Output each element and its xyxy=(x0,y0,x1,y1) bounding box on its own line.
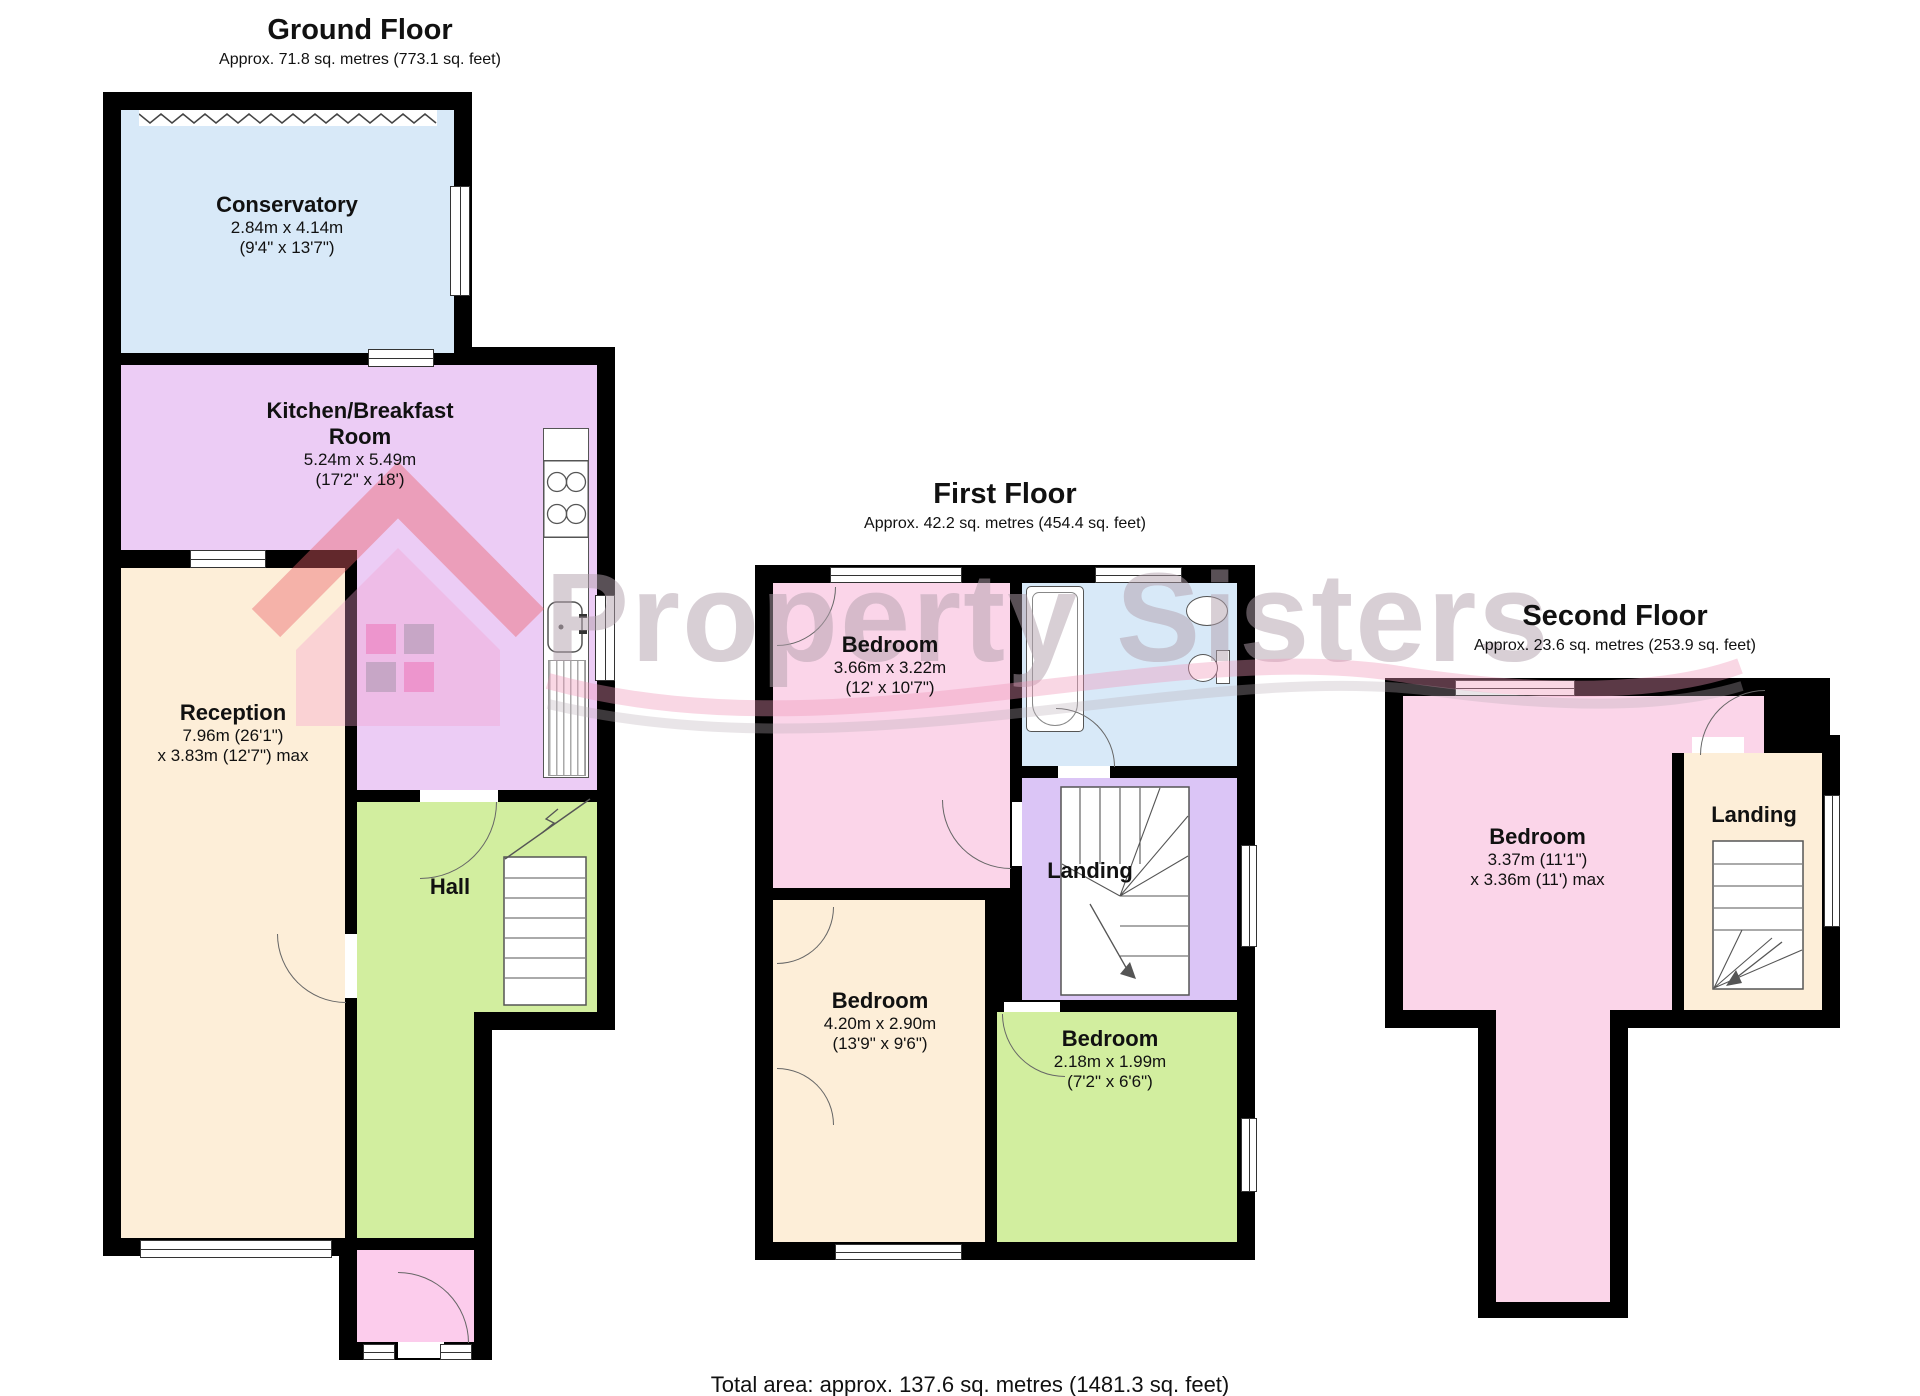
first-floor-subtitle: Approx. 42.2 sq. metres (454.4 sq. feet) xyxy=(755,515,1255,533)
second-floor-title-block: Second Floor Approx. 23.6 sq. metres (25… xyxy=(1380,600,1850,655)
second-floor-stairs xyxy=(1712,840,1804,990)
reception-label: Reception 7.96m (26'1") x 3.83m (12'7") … xyxy=(113,700,353,766)
ff-landing-name: Landing xyxy=(1015,858,1165,884)
sink-icon xyxy=(546,600,588,654)
ff-bedroom1-dims-metric: 3.66m x 3.22m xyxy=(785,658,995,678)
room-reception xyxy=(121,568,345,1238)
draining-board xyxy=(548,660,586,776)
basin-icon xyxy=(1186,596,1228,626)
sf-bedroom-label: Bedroom 3.37m (11'1") x 3.36m (11') max xyxy=(1435,824,1640,890)
reception-dims-metric: 7.96m (26'1") xyxy=(113,726,353,746)
ff-landing-label: Landing xyxy=(1015,858,1165,884)
kitchen-dims-metric: 5.24m x 5.49m xyxy=(240,450,480,470)
bathtub-icon xyxy=(1026,586,1084,732)
conservatory-label: Conservatory 2.84m x 4.14m (9'4" x 13'7"… xyxy=(157,192,417,258)
ff-bathroom-door-gap xyxy=(1058,766,1110,778)
second-floor-subtitle: Approx. 23.6 sq. metres (253.9 sq. feet) xyxy=(1380,637,1850,655)
hall-door-gap xyxy=(420,790,498,802)
sf-top-window xyxy=(1455,680,1575,696)
reception-door-gap xyxy=(345,934,357,998)
ff-bedroom3-name: Bedroom xyxy=(1005,1026,1215,1052)
ff-bedroom1-name: Bedroom xyxy=(785,632,995,658)
sf-bedroom-name: Bedroom xyxy=(1435,824,1640,850)
ground-floor-subtitle: Approx. 71.8 sq. metres (773.1 sq. feet) xyxy=(110,51,610,69)
ground-floor-title-block: Ground Floor Approx. 71.8 sq. metres (77… xyxy=(110,14,610,69)
first-floor-stairs xyxy=(1060,786,1190,996)
ff-top-window-left xyxy=(830,567,962,583)
stairs-cut-line xyxy=(500,793,595,865)
ff-bedroom1-label: Bedroom 3.66m x 3.22m (12' x 10'7") xyxy=(785,632,995,698)
sf-bedroom-dims-imperial: x 3.36m (11') max xyxy=(1435,870,1640,890)
ff-bedroom2-dims-metric: 4.20m x 2.90m xyxy=(775,1014,985,1034)
reception-name: Reception xyxy=(113,700,353,726)
ground-floor-title: Ground Floor xyxy=(110,14,610,47)
total-area-text: Total area: approx. 137.6 sq. metres (14… xyxy=(520,1372,1420,1396)
first-floor-title-block: First Floor Approx. 42.2 sq. metres (454… xyxy=(755,478,1255,533)
first-floor-title: First Floor xyxy=(755,478,1255,511)
kitchen-name: Kitchen/Breakfast Room xyxy=(240,398,480,450)
ff-bedroom2-dims-imperial: (13'9" x 9'6") xyxy=(775,1034,985,1054)
sf-landing-name: Landing xyxy=(1684,802,1824,828)
ff-bedroom1-dims-imperial: (12' x 10'7") xyxy=(785,678,995,698)
ff-bedroom3-door-gap xyxy=(1004,1002,1060,1012)
ff-bedroom3-dims-metric: 2.18m x 1.99m xyxy=(1005,1052,1215,1072)
room-sf-bedroom-column xyxy=(1496,1005,1610,1302)
ff-bedroom3-dims-imperial: (7'2" x 6'6") xyxy=(1005,1072,1215,1092)
sf-bedroom-dims-metric: 3.37m (11'1") xyxy=(1435,850,1640,870)
ff-bedroom3-window xyxy=(1241,1118,1257,1192)
porch-window-right xyxy=(440,1344,472,1360)
hob-icon xyxy=(543,460,589,538)
sf-landing-label: Landing xyxy=(1684,802,1824,828)
toilet-bowl-icon xyxy=(1188,654,1218,682)
second-floor-title: Second Floor xyxy=(1380,600,1850,633)
ff-top-window-right xyxy=(1095,567,1182,583)
floorplan-page: Ground Floor Approx. 71.8 sq. metres (77… xyxy=(0,0,1920,1396)
ff-bottom-window xyxy=(835,1244,962,1260)
conservatory-glazing-zigzag xyxy=(139,110,437,126)
conservatory-dims-metric: 2.84m x 4.14m xyxy=(157,218,417,238)
kitchen-side-window xyxy=(595,595,615,681)
front-door-gap xyxy=(398,1342,444,1358)
sf-landing-window xyxy=(1824,795,1840,927)
toilet-tank-icon xyxy=(1216,650,1230,684)
kitchen-dims-imperial: (17'2" x 18') xyxy=(240,470,480,490)
hall-name: Hall xyxy=(380,874,520,900)
room-kitchen-strip xyxy=(357,550,463,790)
kitchen-label: Kitchen/Breakfast Room 5.24m x 5.49m (17… xyxy=(240,398,480,490)
kitchen-top-window xyxy=(368,349,434,367)
porch-window-left xyxy=(363,1344,395,1360)
hall-label: Hall xyxy=(380,874,520,900)
reception-bottom-window xyxy=(140,1240,332,1258)
ff-bedroom2-label: Bedroom 4.20m x 2.90m (13'9" x 9'6") xyxy=(775,988,985,1054)
ff-bedroom2-name: Bedroom xyxy=(775,988,985,1014)
ff-landing-window xyxy=(1241,845,1257,947)
conservatory-window xyxy=(450,186,470,296)
ff-bedroom1-door-gap xyxy=(1012,802,1022,866)
ff-bedroom3-label: Bedroom 2.18m x 1.99m (7'2" x 6'6") xyxy=(1005,1026,1215,1092)
reception-dims-imperial: x 3.83m (12'7") max xyxy=(113,746,353,766)
reception-top-window xyxy=(190,550,266,568)
conservatory-name: Conservatory xyxy=(157,192,417,218)
conservatory-dims-imperial: (9'4" x 13'7") xyxy=(157,238,417,258)
room-hall-lower xyxy=(357,1012,474,1238)
